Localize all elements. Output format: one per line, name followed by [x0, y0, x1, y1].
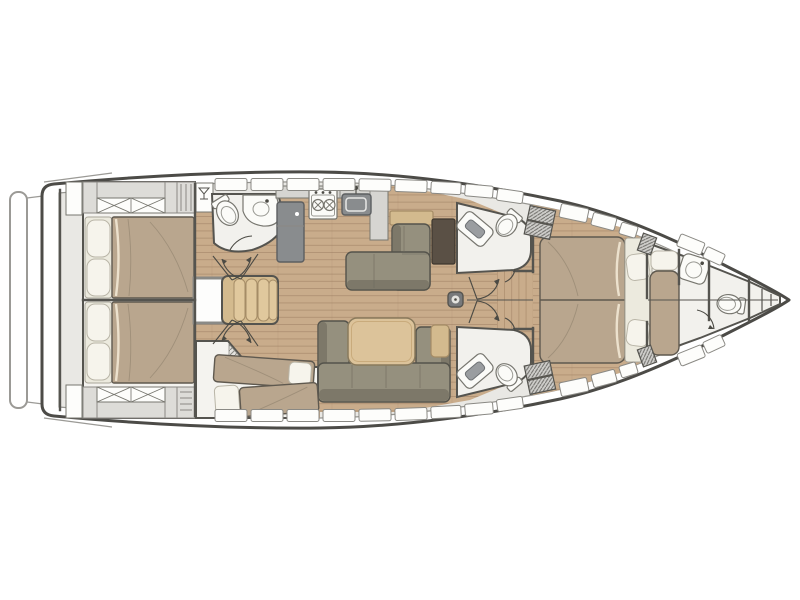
island-double-bed [540, 237, 652, 363]
yacht-floorplan-canvas [0, 0, 800, 600]
double-bed [85, 302, 194, 383]
pillow [87, 343, 110, 380]
aft-cabin-port [66, 182, 195, 300]
shelf-cabinet [177, 387, 195, 418]
chart-desk [432, 219, 455, 264]
side-door [66, 385, 82, 418]
pillow [87, 304, 110, 341]
shelf [390, 211, 433, 225]
pillow [87, 259, 110, 296]
dining-table [348, 318, 415, 365]
companionway-stairs [222, 276, 278, 324]
salon-dinette [318, 318, 450, 402]
wardrobe-x-lockers [97, 198, 165, 213]
stove-two-burner [309, 189, 337, 219]
pillow [288, 362, 311, 385]
wet-bar-port [196, 183, 213, 212]
mast-foot [448, 292, 463, 307]
berth-pillow [651, 251, 678, 270]
floorplan-svg [0, 0, 800, 600]
wardrobe-x-lockers [97, 387, 165, 402]
engine-hatch [194, 278, 223, 323]
side-shelf [431, 325, 449, 357]
refrigerator [277, 202, 304, 262]
pillow [87, 220, 110, 257]
side-door [66, 182, 82, 215]
double-bed [85, 217, 194, 298]
shelf-cabinet [177, 182, 195, 213]
single-berth [650, 271, 679, 355]
aft-cabin-starboard [66, 300, 195, 418]
